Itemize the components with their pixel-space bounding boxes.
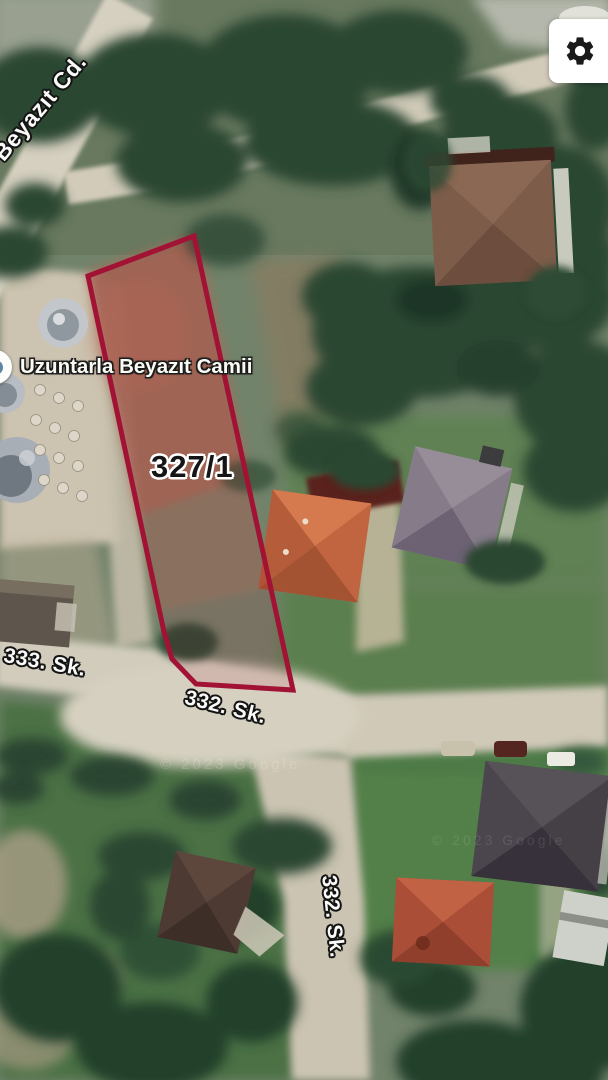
imagery-watermark: © 2023 Google [432,832,565,848]
poi-label-mosque[interactable]: Uzuntarla Beyazıt Camii [0,350,252,384]
mosque-poi-icon [0,350,12,384]
house-orange-roof [259,490,372,603]
imagery-watermark: © 2023 Google [160,756,300,773]
building-left-edge [0,579,78,648]
building-dark-roof-right [471,761,608,893]
settings-button[interactable] [549,19,608,83]
house-red-roof-bottom [392,877,494,966]
parcel-number-label: 327/1 [151,449,234,485]
satellite-imagery [0,0,608,1080]
poi-label-text: Uzuntarla Beyazıt Camii [20,355,252,379]
gear-icon [563,34,597,68]
map-view[interactable]: © 2023 Google © 2023 Google Beyazıt Cd. … [0,0,608,1080]
